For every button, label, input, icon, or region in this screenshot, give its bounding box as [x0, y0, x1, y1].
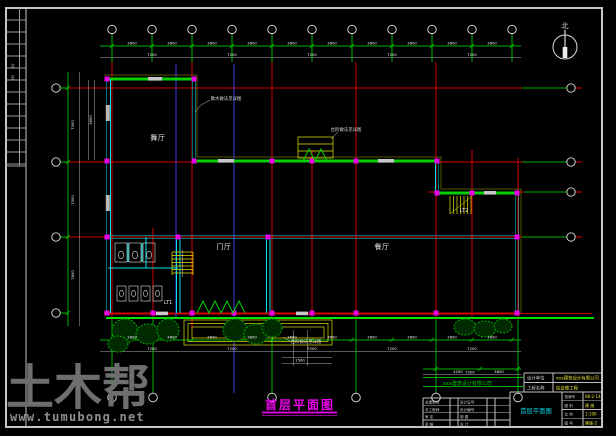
- svg-text:总建筑师: 总建筑师: [425, 400, 440, 405]
- svg-text:7200: 7200: [227, 346, 237, 351]
- svg-text:3600: 3600: [127, 40, 137, 45]
- note-apron: 散水做法见详图: [211, 95, 242, 102]
- watermark-logo: 土木帮: [6, 360, 150, 416]
- note-steps-top: 台阶做法见详图: [331, 126, 362, 133]
- room-label-dining-hall: 餐厅: [375, 242, 390, 251]
- svg-text:3600: 3600: [167, 40, 177, 45]
- svg-text:7200: 7200: [147, 346, 157, 351]
- svg-text:7200: 7200: [307, 346, 317, 351]
- tb-upper-label-1: 设计单位: [527, 375, 545, 382]
- stair-label-lt2: LT2: [460, 208, 468, 214]
- svg-text:3600: 3600: [327, 40, 337, 45]
- svg-text:7200: 7200: [465, 370, 475, 375]
- svg-text:3600: 3600: [487, 40, 497, 45]
- cad-floor-plan-canvas: 会 签 北: [0, 0, 616, 436]
- svg-text:7200: 7200: [227, 52, 237, 57]
- stair-label-lt1: LT1: [164, 300, 172, 306]
- tb-upper-value-2: 综合楼工程: [556, 385, 579, 392]
- svg-text:7200: 7200: [387, 346, 397, 351]
- svg-text:3600: 3600: [367, 334, 377, 339]
- svg-text:7200: 7200: [467, 346, 477, 351]
- svg-text:建施-2: 建施-2: [585, 419, 597, 425]
- tb-drawing-name: 首层平面图: [520, 406, 551, 415]
- tb-upper-value-1: xxx建筑设计有限公司: [556, 375, 599, 382]
- svg-text:审 核: 审 核: [425, 421, 434, 426]
- svg-text:3600: 3600: [367, 40, 377, 45]
- svg-text:比 例: 比 例: [565, 412, 574, 417]
- svg-text:3600: 3600: [127, 334, 137, 339]
- svg-text:建 施: 建 施: [585, 402, 594, 408]
- svg-text:3600: 3600: [407, 334, 417, 339]
- svg-text:3600: 3600: [327, 334, 337, 339]
- svg-text:7200: 7200: [307, 52, 317, 57]
- drawing-title-text: 首层平面图: [265, 397, 335, 412]
- svg-text:3600: 3600: [447, 40, 457, 45]
- svg-text:3600: 3600: [287, 334, 297, 339]
- room-label-dance-hall: 舞厅: [151, 133, 166, 142]
- svg-text:3600: 3600: [247, 334, 257, 339]
- svg-text:7200: 7200: [467, 52, 477, 57]
- svg-text:设计证号: 设计证号: [460, 400, 475, 405]
- svg-text:设 计: 设 计: [460, 421, 469, 426]
- svg-text:1500: 1500: [295, 358, 305, 363]
- svg-text:3600: 3600: [287, 40, 297, 45]
- svg-text:制 图: 制 图: [460, 414, 469, 419]
- svg-text:3600: 3600: [207, 40, 217, 45]
- strip-label: 会: [11, 62, 15, 68]
- svg-text:审 定: 审 定: [425, 414, 434, 419]
- svg-text:3800: 3800: [494, 369, 504, 374]
- svg-text:7200: 7200: [387, 52, 397, 57]
- svg-text:3600: 3600: [207, 334, 217, 339]
- svg-text:总工程师: 总工程师: [425, 407, 440, 412]
- svg-text:3600: 3600: [487, 334, 497, 339]
- tb-upper-label-2: 工程名称: [527, 385, 545, 392]
- note-steps-bottom: 台阶做法见详图: [291, 338, 322, 345]
- tb-company-name: xxx建筑设计有限公司: [443, 380, 492, 387]
- svg-text:设计编号: 设计编号: [460, 407, 475, 412]
- north-label: 北: [562, 22, 569, 30]
- svg-text:3600: 3600: [407, 40, 417, 45]
- svg-text:档案号: 档案号: [565, 394, 576, 399]
- svg-text:08-2-14: 08-2-14: [585, 394, 601, 399]
- svg-text:3600: 3600: [247, 40, 257, 45]
- svg-text:图 别: 图 别: [565, 403, 574, 408]
- watermark-url: www.tumubong.net: [10, 410, 145, 424]
- strip-label: 签: [11, 74, 15, 80]
- svg-text:7200: 7200: [147, 52, 157, 57]
- svg-text:7500: 7500: [70, 195, 75, 205]
- svg-text:3600: 3600: [447, 334, 457, 339]
- svg-text:4200: 4200: [453, 369, 463, 374]
- svg-text:图 号: 图 号: [565, 420, 574, 425]
- svg-text:7500: 7500: [70, 120, 75, 130]
- svg-text:1:100: 1:100: [585, 412, 597, 417]
- drawing-title: 首层平面图: [262, 397, 337, 415]
- room-label-entry-hall: 门厅: [217, 242, 232, 251]
- svg-text:3600: 3600: [167, 334, 177, 339]
- svg-text:3600: 3600: [88, 115, 93, 125]
- svg-text:7600: 7600: [70, 270, 75, 280]
